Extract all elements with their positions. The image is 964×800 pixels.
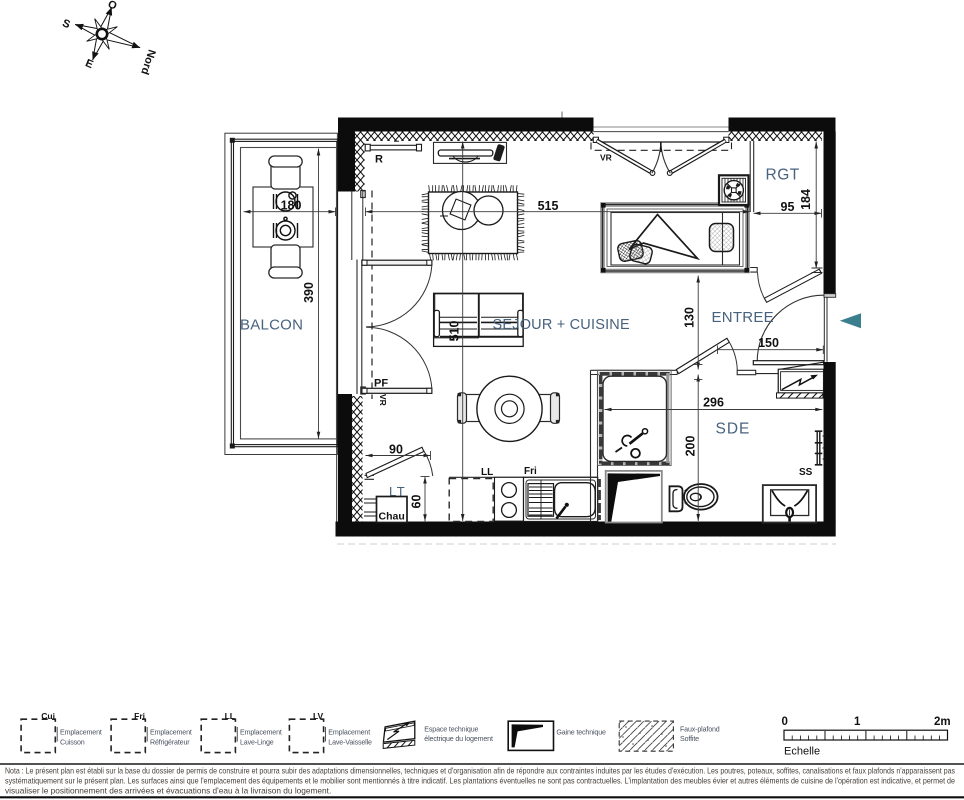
svg-text:SEJOUR + CUISINE: SEJOUR + CUISINE bbox=[493, 317, 630, 333]
svg-text:184: 184 bbox=[799, 189, 813, 210]
svg-text:systématiquement sur le présen: systématiquement sur le présent plan. Le… bbox=[5, 776, 955, 786]
svg-text:visualiser le positionnement d: visualiser le positionnement des arrivée… bbox=[5, 786, 331, 796]
svg-text:Soffite: Soffite bbox=[680, 735, 699, 743]
svg-text:Lave-Vaisselle: Lave-Vaisselle bbox=[328, 738, 372, 746]
svg-text:Lave-Linge: Lave-Linge bbox=[240, 738, 274, 746]
svg-text:Emplacement: Emplacement bbox=[60, 729, 102, 737]
svg-text:510: 510 bbox=[448, 321, 462, 342]
svg-text:PF: PF bbox=[374, 378, 388, 390]
svg-text:SS: SS bbox=[799, 467, 813, 478]
svg-text:Echelle: Echelle bbox=[784, 746, 820, 758]
svg-text:Emplacement: Emplacement bbox=[328, 729, 370, 737]
svg-text:Faux-plafond: Faux-plafond bbox=[680, 726, 720, 734]
svg-text:Emplacement: Emplacement bbox=[150, 729, 192, 737]
svg-text:Nota : Le présent plan est éta: Nota : Le présent plan est établi sur la… bbox=[5, 765, 955, 775]
svg-text:515: 515 bbox=[538, 199, 559, 213]
svg-text:130: 130 bbox=[683, 307, 697, 328]
svg-text:R: R bbox=[375, 154, 383, 166]
svg-text:VR: VR bbox=[600, 153, 612, 163]
svg-text:180: 180 bbox=[281, 199, 302, 213]
svg-text:Fri: Fri bbox=[524, 466, 537, 477]
svg-text:0: 0 bbox=[782, 716, 788, 728]
svg-text:SDE: SDE bbox=[716, 421, 751, 438]
svg-text:60: 60 bbox=[410, 495, 424, 509]
svg-text:Chau: Chau bbox=[379, 511, 405, 523]
svg-text:390: 390 bbox=[302, 282, 316, 303]
svg-text:BALCON: BALCON bbox=[240, 317, 303, 334]
svg-text:150: 150 bbox=[758, 336, 779, 350]
svg-text:Fri: Fri bbox=[134, 711, 145, 721]
svg-text:VR: VR bbox=[378, 394, 388, 406]
svg-text:électrique du logement: électrique du logement bbox=[424, 735, 493, 743]
svg-text:296: 296 bbox=[703, 395, 724, 409]
svg-text:RGT: RGT bbox=[766, 167, 800, 184]
svg-text:90: 90 bbox=[389, 442, 403, 456]
svg-text:2m: 2m bbox=[934, 716, 951, 728]
svg-text:Cui: Cui bbox=[41, 711, 55, 721]
svg-text:LL: LL bbox=[225, 711, 235, 721]
svg-text:ENTREE: ENTREE bbox=[712, 309, 774, 326]
svg-text:1: 1 bbox=[854, 716, 861, 728]
svg-text:Cuisson: Cuisson bbox=[60, 738, 85, 746]
svg-text:Réfrigérateur: Réfrigérateur bbox=[150, 738, 190, 746]
svg-text:Espace technique: Espace technique bbox=[424, 726, 478, 734]
svg-text:LL: LL bbox=[481, 467, 493, 478]
svg-text:Gaine technique: Gaine technique bbox=[556, 728, 606, 736]
svg-text:Emplacement: Emplacement bbox=[240, 729, 282, 737]
svg-text:200: 200 bbox=[684, 436, 698, 457]
svg-text:95: 95 bbox=[781, 200, 795, 214]
svg-text:LV: LV bbox=[313, 711, 324, 721]
